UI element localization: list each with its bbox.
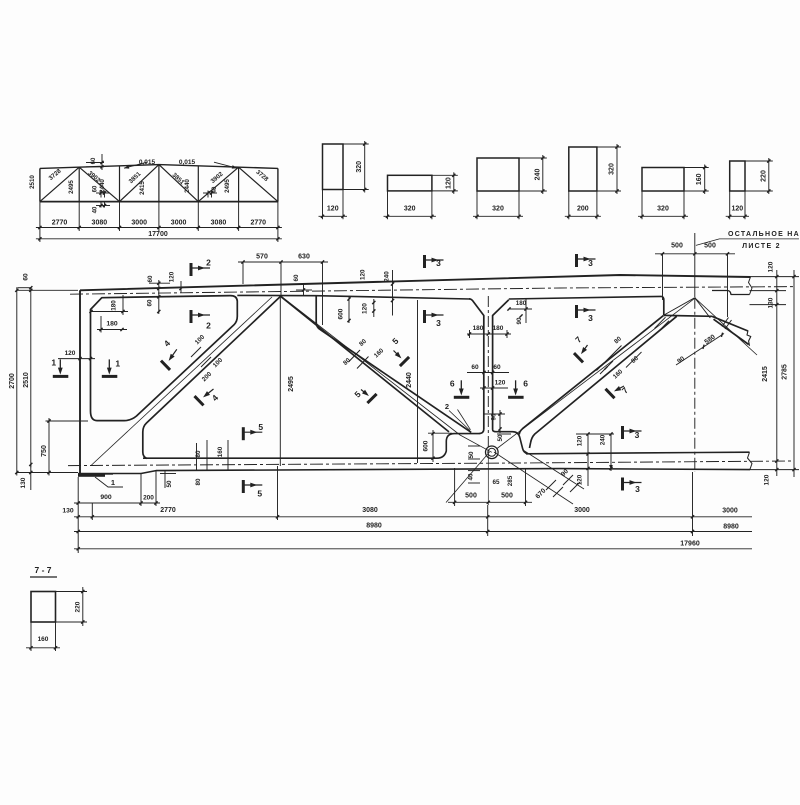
- svg-text:120: 120: [361, 303, 368, 314]
- svg-text:1: 1: [111, 478, 115, 487]
- svg-text:500: 500: [501, 493, 513, 500]
- svg-text:3000: 3000: [171, 220, 187, 227]
- svg-text:2495: 2495: [224, 179, 231, 193]
- svg-text:3000: 3000: [722, 508, 738, 515]
- svg-text:570: 570: [256, 254, 268, 261]
- svg-text:500: 500: [465, 493, 477, 500]
- svg-text:120: 120: [359, 269, 366, 280]
- svg-text:320: 320: [356, 161, 363, 173]
- svg-text:2510: 2510: [29, 175, 36, 189]
- svg-text:2785: 2785: [782, 364, 789, 380]
- svg-text:65: 65: [492, 479, 500, 486]
- svg-text:120: 120: [169, 271, 176, 282]
- svg-text:220: 220: [760, 170, 767, 182]
- svg-text:60: 60: [147, 299, 154, 307]
- svg-text:120: 120: [577, 474, 584, 485]
- svg-text:40: 40: [212, 186, 218, 193]
- svg-text:60: 60: [93, 185, 99, 192]
- svg-text:8980: 8980: [723, 524, 739, 531]
- svg-text:40: 40: [93, 206, 99, 213]
- svg-text:130: 130: [767, 297, 774, 308]
- svg-text:3080: 3080: [211, 220, 227, 227]
- svg-text:3000: 3000: [131, 220, 147, 227]
- svg-text:3080: 3080: [92, 220, 108, 227]
- svg-text:130: 130: [20, 477, 27, 488]
- svg-text:600: 600: [338, 308, 345, 319]
- svg-text:0,015: 0,015: [179, 159, 196, 166]
- svg-text:120: 120: [764, 474, 771, 485]
- svg-text:50: 50: [166, 480, 173, 488]
- svg-text:160: 160: [38, 636, 49, 643]
- svg-text:50: 50: [468, 451, 475, 459]
- svg-text:3000: 3000: [574, 507, 590, 514]
- svg-text:3: 3: [436, 318, 441, 328]
- svg-text:50: 50: [497, 434, 504, 442]
- svg-text:750: 750: [41, 445, 48, 457]
- svg-text:60: 60: [147, 275, 154, 283]
- svg-text:17700: 17700: [148, 231, 168, 238]
- svg-text:2495: 2495: [68, 180, 75, 194]
- svg-text:17960: 17960: [680, 541, 700, 548]
- svg-text:5: 5: [258, 422, 263, 432]
- svg-text:285: 285: [507, 475, 514, 486]
- svg-text:500: 500: [704, 243, 716, 250]
- svg-text:130: 130: [62, 508, 74, 515]
- svg-text:60: 60: [91, 157, 97, 164]
- svg-text:2440: 2440: [406, 372, 413, 388]
- svg-text:2: 2: [206, 321, 211, 331]
- svg-text:6: 6: [450, 378, 455, 388]
- svg-text:320: 320: [657, 205, 669, 212]
- svg-text:3: 3: [588, 313, 593, 323]
- svg-text:80: 80: [195, 478, 202, 486]
- svg-text:320: 320: [492, 205, 504, 212]
- svg-text:180: 180: [516, 300, 527, 307]
- svg-text:160: 160: [696, 173, 703, 185]
- svg-text:240: 240: [600, 434, 607, 445]
- svg-text:60: 60: [493, 364, 501, 371]
- svg-text:60: 60: [23, 273, 30, 281]
- svg-text:2770: 2770: [250, 220, 266, 227]
- svg-text:2415: 2415: [139, 181, 146, 195]
- svg-text:120: 120: [577, 435, 584, 446]
- svg-text:3: 3: [635, 430, 640, 440]
- svg-text:7 - 7: 7 - 7: [34, 565, 51, 575]
- svg-text:120: 120: [767, 261, 774, 272]
- svg-text:120: 120: [327, 205, 339, 212]
- svg-text:3: 3: [588, 258, 593, 268]
- svg-text:120: 120: [495, 380, 506, 387]
- svg-text:2700: 2700: [9, 373, 16, 389]
- svg-text:ОСТАЛЬНОЕ НА: ОСТАЛЬНОЕ НА: [728, 231, 800, 238]
- svg-text:90: 90: [516, 317, 523, 325]
- svg-text:630: 630: [298, 254, 310, 261]
- svg-text:2415: 2415: [762, 366, 769, 382]
- svg-text:180: 180: [111, 300, 118, 311]
- svg-text:60: 60: [293, 274, 300, 282]
- svg-text:2440: 2440: [184, 179, 191, 193]
- svg-text:3: 3: [635, 484, 640, 494]
- svg-text:220: 220: [75, 601, 82, 612]
- svg-text:120: 120: [65, 350, 76, 357]
- svg-text:2770: 2770: [52, 220, 68, 227]
- svg-text:1: 1: [51, 357, 56, 367]
- svg-text:3080: 3080: [362, 507, 378, 514]
- svg-text:0,015: 0,015: [139, 159, 156, 166]
- svg-text:40: 40: [468, 473, 475, 481]
- svg-text:900: 900: [100, 494, 112, 501]
- svg-text:180: 180: [473, 325, 484, 332]
- svg-text:60: 60: [471, 364, 479, 371]
- svg-text:5: 5: [257, 489, 262, 499]
- svg-text:180: 180: [493, 325, 504, 332]
- svg-text:2770: 2770: [160, 507, 176, 514]
- svg-text:240: 240: [534, 169, 541, 181]
- svg-text:2: 2: [206, 258, 211, 268]
- svg-text:320: 320: [404, 205, 416, 212]
- svg-text:120: 120: [445, 177, 452, 189]
- svg-text:2510: 2510: [23, 372, 30, 388]
- svg-text:240: 240: [384, 271, 391, 282]
- svg-text:320: 320: [609, 163, 616, 175]
- svg-text:200: 200: [143, 495, 154, 502]
- svg-text:1: 1: [115, 358, 120, 368]
- svg-text:200: 200: [577, 205, 589, 212]
- svg-text:180: 180: [106, 321, 118, 328]
- svg-text:2: 2: [445, 402, 449, 411]
- svg-text:120: 120: [732, 205, 744, 212]
- svg-text:600: 600: [423, 440, 430, 451]
- svg-text:500: 500: [671, 243, 683, 250]
- svg-text:8980: 8980: [366, 523, 382, 530]
- svg-text:2495: 2495: [288, 376, 295, 392]
- svg-text:6: 6: [523, 378, 528, 388]
- svg-text:160: 160: [217, 446, 224, 457]
- svg-text:80: 80: [195, 450, 202, 458]
- svg-text:ЛИСТЕ 2: ЛИСТЕ 2: [742, 243, 781, 250]
- svg-text:3: 3: [436, 258, 441, 268]
